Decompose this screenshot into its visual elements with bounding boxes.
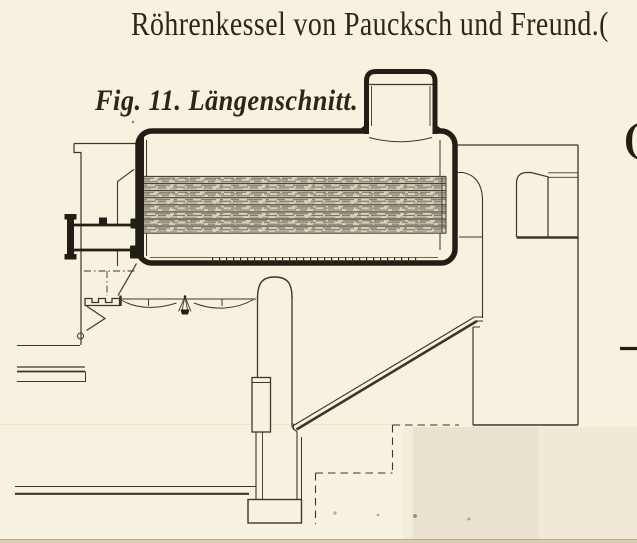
engraving-page: Röhrenkessel von Paucksch und Freund.( F… [0,0,637,543]
floor-lines [15,487,256,494]
front-masonry-wall [17,144,137,382]
rear-masonry-flue [457,145,579,425]
fire-grate [85,295,256,330]
title-trailing-parenthesis: ( [599,6,609,43]
steam-dome [357,72,445,142]
cut-off-glyph: ( [624,114,637,161]
inclined-wall [294,317,484,430]
feed-pipe [65,214,141,260]
figure-title-text: Röhrenkessel von Paucksch und Freund. [131,6,599,43]
tube-bundle [144,176,446,233]
figure-caption: Fig. 11. Längenschnitt. [95,84,358,118]
support-pillar [248,277,302,523]
figure-title: Röhrenkessel von Paucksch und Freund.( [131,6,609,44]
engraving-drawing [0,0,637,543]
grate-damper [179,295,192,314]
